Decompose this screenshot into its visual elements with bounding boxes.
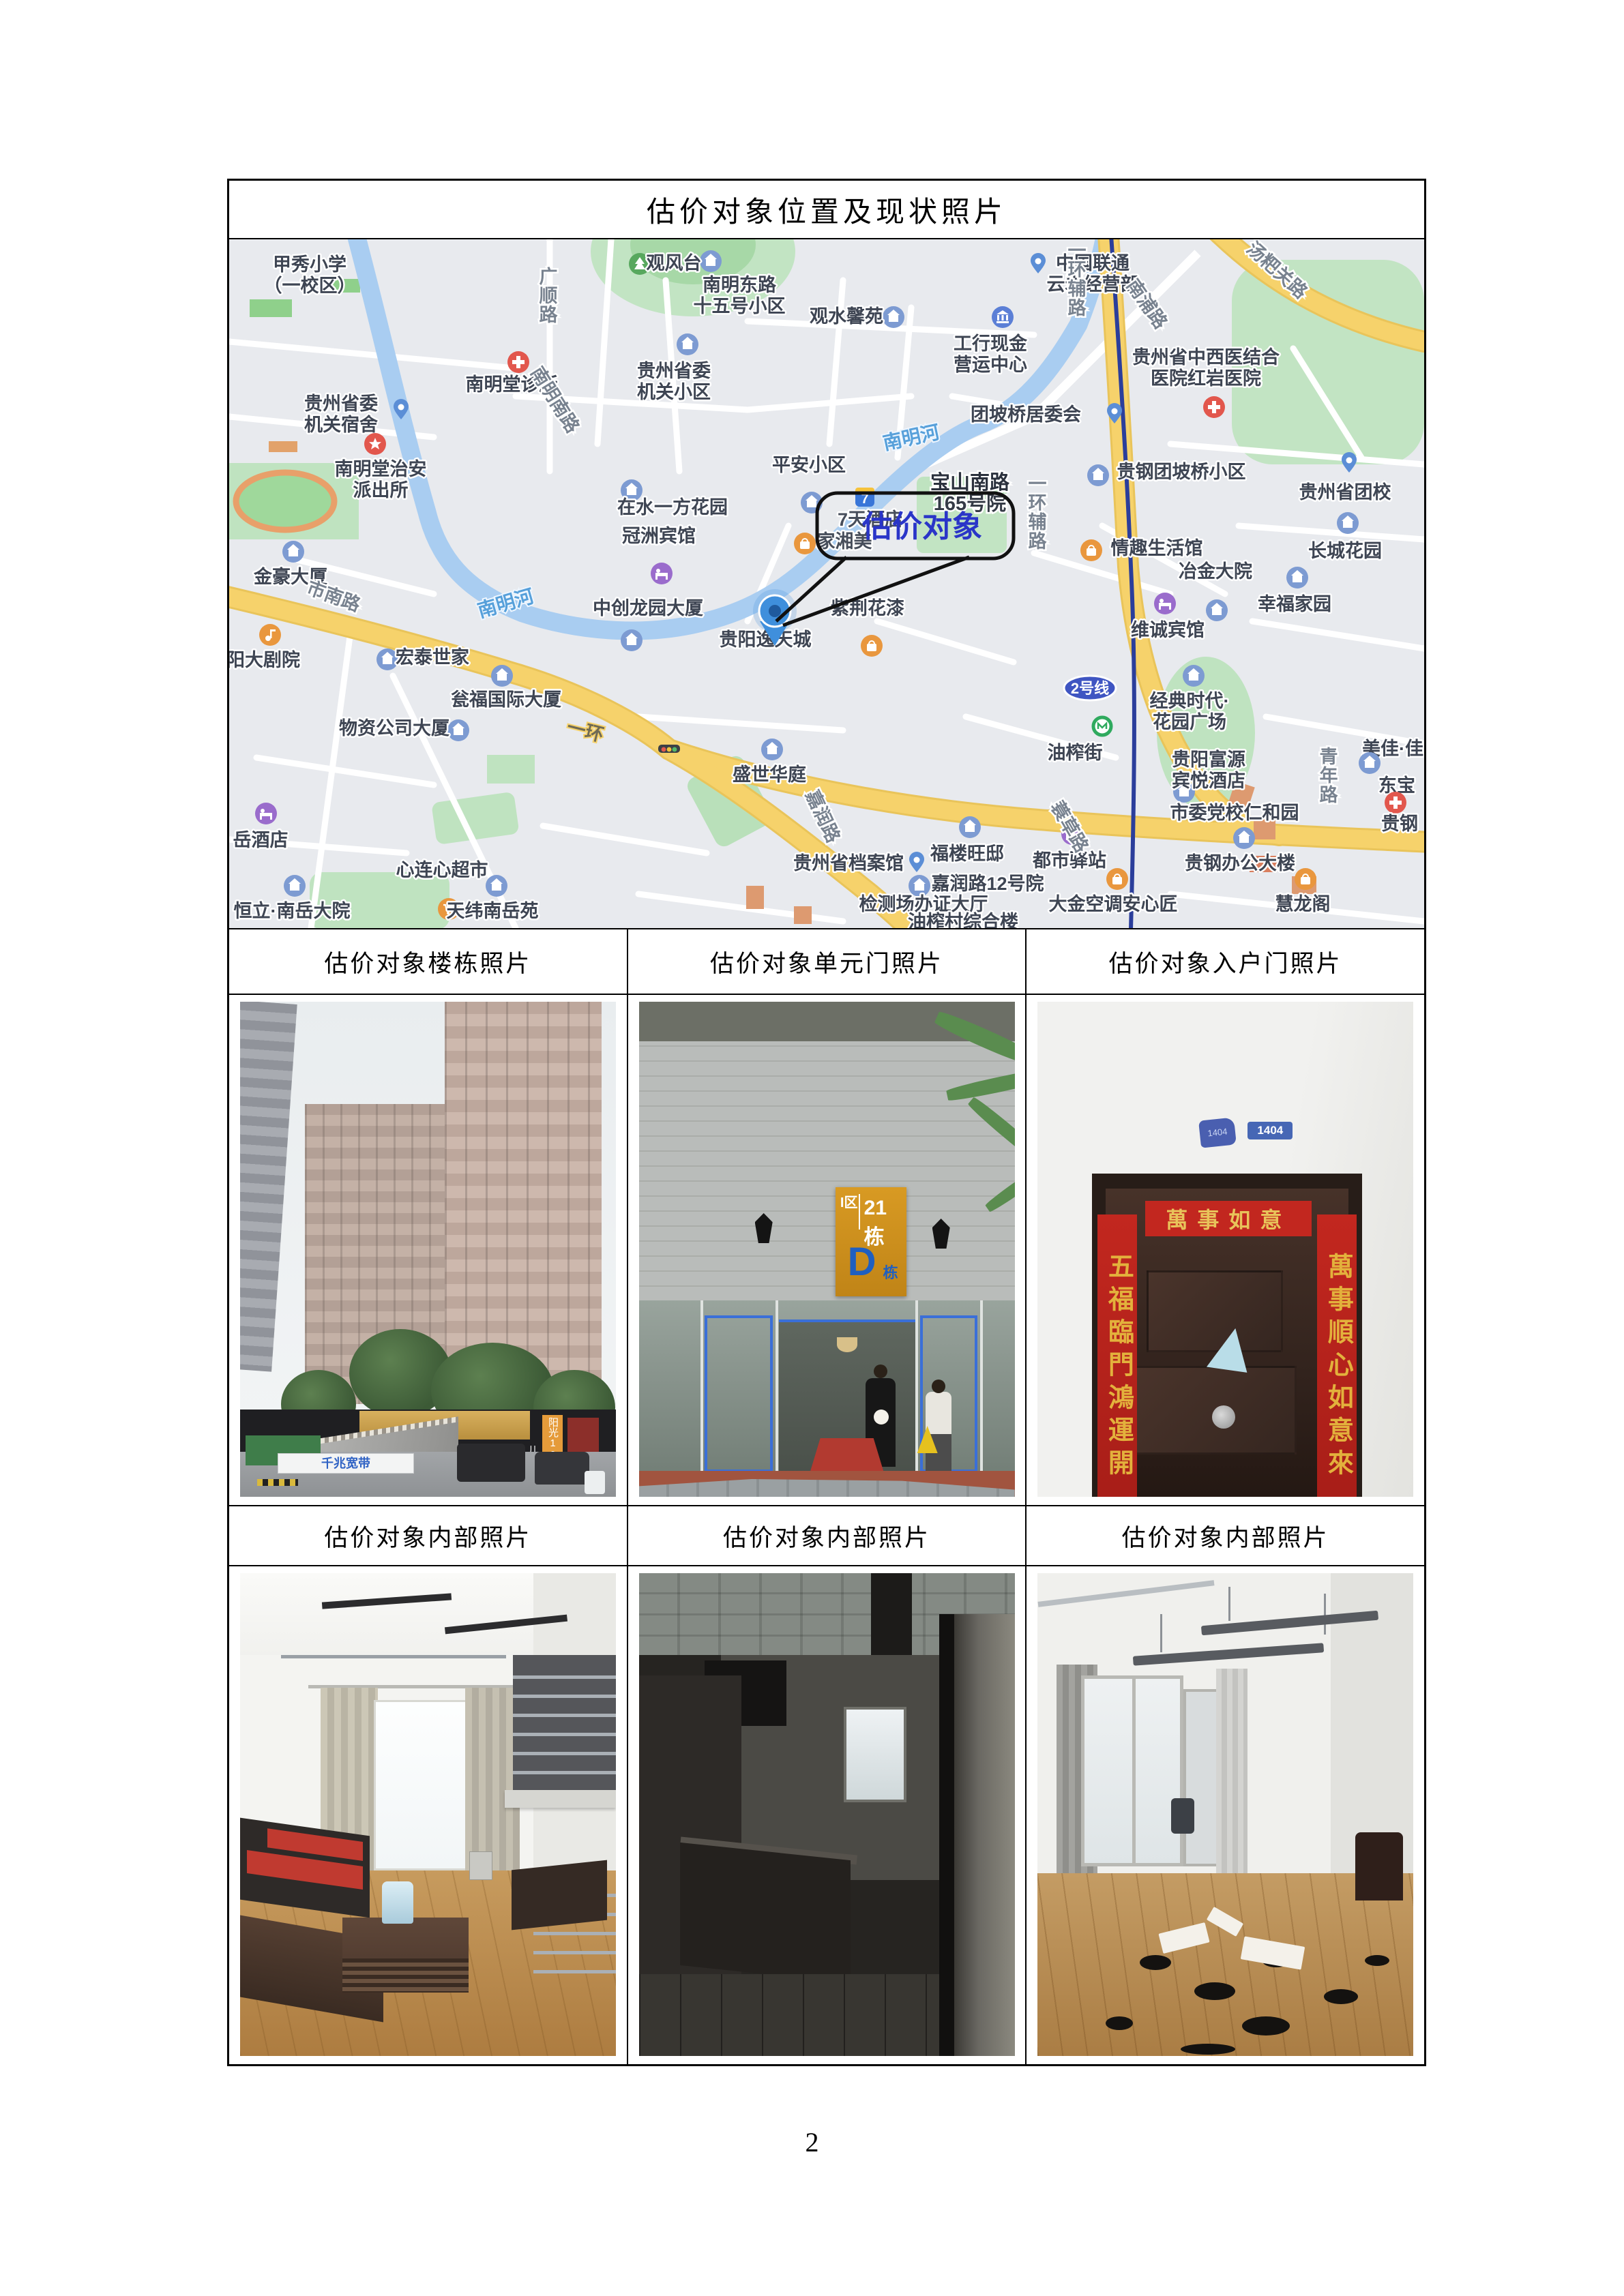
star-icon [364,433,386,455]
map-label: 观风台 [647,252,702,273]
metro-badge-label: 2号线 [1071,680,1109,697]
header-building-photo: 估价对象楼栋照片 [229,929,628,994]
comm-icon [1233,827,1255,849]
map-label: 冠洲宾馆 [622,525,696,546]
door-top-banner: 萬事如意 [1145,1201,1312,1236]
comm-icon [486,875,507,897]
bag-icon [794,533,816,554]
comm-icon [1337,512,1359,534]
map-label: 物资公司大厦 [339,718,449,739]
subject-callout-label: 估价对象 [861,510,982,543]
map-label: 青年路 [1320,747,1339,805]
cross-icon [1203,396,1225,418]
bag-icon [1080,539,1102,561]
map-label: 宏泰世家 [396,646,469,668]
map-label: 贵钢 [1381,814,1418,834]
map-label: 市委党校仁和园 [1170,802,1299,823]
photo-table: 估价对象位置及现状照片 7 [227,179,1426,2066]
water-jug [382,1881,413,1924]
hotel-icon [1154,593,1176,614]
hotel-icon [255,803,277,824]
map-label: 盛世华庭 [733,764,806,785]
header-interior-photo-1: 估价对象内部照片 [229,1506,628,1565]
photo-row-2 [229,1566,1424,2066]
map-label: 贵州省委机关宿舍 [304,393,379,435]
comm-icon [621,629,643,651]
building-number-sign: I区 21栋 D 栋 [836,1187,906,1296]
comm-icon [447,719,469,741]
header-interior-photo-2: 估价对象内部照片 [628,1506,1027,1565]
map-label: 大金空调安心匠 [1049,893,1178,914]
map-label: 平安小区 [772,455,846,475]
map-label: 嘉润路12号院 [931,873,1044,894]
map-label: 贵阳逸天城 [720,629,812,650]
map-label: 贵钢团坡桥小区 [1117,462,1246,482]
interior-photo-kitchen [639,1573,1015,2056]
map-label: 幸福家园 [1258,593,1331,614]
map-label: 维诚宾馆 [1131,619,1205,640]
motorbike [535,1452,589,1485]
cell-interior-photo-3 [1027,1566,1424,2066]
map-label: 冶金大院 [1179,561,1252,582]
hotel-icon [651,563,673,584]
map-label: 福楼旺邸 [930,844,1004,864]
map-label: 贵钢办公大楼 [1185,853,1295,874]
metro-line-badge: 2号线 [1064,676,1116,700]
couplet-left: 五福臨門鴻運開 [1097,1214,1137,1497]
comm-icon [1359,752,1381,774]
map-label: 在水一方花园 [617,496,728,518]
tv-cabinet [512,1860,607,1930]
map-label: 岳酒店 [233,830,289,850]
map-label: 天纬南岳苑 [447,900,539,921]
comm-icon [491,665,513,687]
comm-icon [284,875,306,897]
map-label: 紫荆花漆 [831,598,904,618]
metro-icon [1093,717,1111,735]
map-label: 油榨街 [1048,742,1103,763]
photo-header-row-2: 估价对象内部照片 估价对象内部照片 估价对象内部照片 [229,1506,1424,1566]
cell-unit-door-photo: I区 21栋 D 栋 [628,995,1027,1505]
map-label: 油榨村综合楼 [908,911,1018,928]
note-icon [259,624,281,646]
comm-icon [1286,567,1308,588]
comm-icon [1183,665,1205,687]
building-photo: 阳光100幼儿 千兆宽带 [240,1002,616,1497]
wall-fan [1171,1798,1194,1834]
map-label: 广顺路 [540,267,559,325]
couplet-right: 萬事順心如意來 [1317,1214,1357,1497]
map-label: 观水馨苑 [810,306,883,327]
location-map: 7 [229,239,1424,928]
comm-icon [761,739,783,760]
cell-interior-photo-2 [628,1566,1027,2066]
comm-icon [883,306,904,328]
comm-icon [959,816,981,838]
page-number: 2 [0,2126,1624,2158]
interior-photo-living-room [240,1573,616,2056]
armchair [1355,1832,1403,1900]
interior-photo-room [1037,1573,1413,2056]
photo-row-1: 阳光100幼儿 千兆宽带 I区 [229,995,1424,1506]
coffee-table [342,1918,469,1993]
cell-interior-photo-1 [229,1566,628,2066]
map-label: 一环辅路 [1029,474,1048,552]
photo-header-row-1: 估价对象楼栋照片 估价对象单元门照片 估价对象入户门照片 [229,929,1424,995]
bag-icon [1295,868,1316,890]
comm-icon [700,250,722,272]
header-interior-photo-3: 估价对象内部照片 [1027,1506,1424,1565]
bag-icon [861,635,883,657]
map-label: 团坡桥居委会 [971,404,1081,425]
cell-entry-door-photo: 1404 1404 萬事如意 五福臨門鴻運開 萬事順心如意來 [1027,995,1424,1505]
comm-icon [282,541,304,563]
map-label: 慧龙阁 [1275,893,1331,914]
door-number-sticker: 1404 [1198,1117,1237,1148]
delivery-van [457,1444,525,1482]
traffic-light-icon [658,745,680,753]
document-page: 估价对象位置及现状照片 7 [0,0,1624,2296]
map-label: 贵州省档案馆 [793,852,904,874]
header-unit-door-photo: 估价对象单元门照片 [628,929,1027,994]
map-label: 阳大剧院 [229,649,300,670]
header-entry-door-photo: 估价对象入户门照片 [1027,929,1424,994]
entry-door-photo: 1404 1404 萬事如意 五福臨門鴻運開 萬事順心如意來 [1037,1002,1413,1497]
map-label: 贵州省团校 [1299,481,1391,503]
bank-icon [992,306,1014,328]
map-label: 中创龙园大厦 [593,598,703,618]
map-label: 恒立·南岳大院 [234,900,351,921]
comm-icon [677,333,698,355]
street-banner: 千兆宽带 [278,1453,414,1474]
comm-icon [1087,464,1109,486]
cross-icon [1385,792,1406,814]
map-label: 一环辅路 [1068,241,1087,318]
table-title-row: 估价对象位置及现状照片 [229,181,1424,239]
map-label: 贵州省委机关小区 [637,361,711,402]
triangle-sticker [1207,1325,1253,1373]
cross-icon [507,351,529,373]
bag-icon [1106,868,1128,890]
map-label: 情趣生活馆 [1111,537,1203,558]
unit-door-photo: I区 21栋 D 栋 [639,1002,1015,1497]
map-label: 瓮福国际大厦 [451,689,561,710]
page-title: 估价对象位置及现状照片 [647,189,1007,230]
door-number-plate: 1404 [1247,1122,1293,1139]
comm-icon [1206,599,1228,621]
location-map-row: 7 [229,239,1424,929]
map-label: 长城花园 [1308,541,1382,561]
map-label: 都市驿站 [1032,850,1106,871]
map-label: 心连心超市 [396,859,488,880]
cell-building-photo: 阳光100幼儿 千兆宽带 [229,995,628,1505]
